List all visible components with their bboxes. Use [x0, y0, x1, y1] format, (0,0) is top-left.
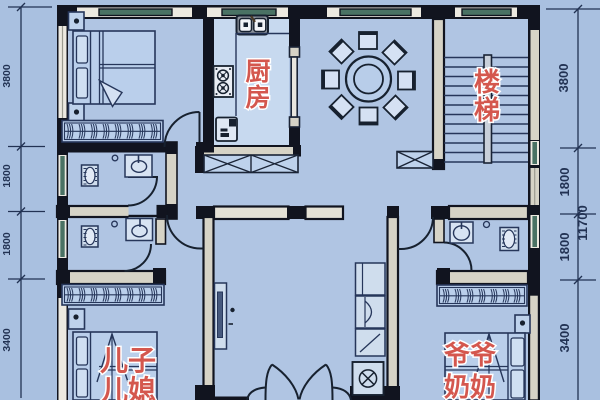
svg-text:楼: 楼 — [474, 67, 500, 97]
svg-text:爷爷: 爷爷 — [444, 340, 497, 370]
svg-text:儿媳: 儿媳 — [100, 374, 156, 400]
svg-text:1800: 1800 — [1, 164, 13, 188]
svg-text:3400: 3400 — [1, 328, 13, 352]
svg-text:3800: 3800 — [1, 64, 13, 88]
svg-text:奶奶: 奶奶 — [444, 372, 496, 400]
svg-text:房: 房 — [245, 83, 270, 112]
svg-text:1800: 1800 — [1, 232, 13, 256]
svg-text:11700: 11700 — [575, 205, 590, 240]
svg-text:3800: 3800 — [556, 64, 571, 93]
svg-text:1800: 1800 — [557, 168, 572, 197]
svg-text:儿子: 儿子 — [100, 345, 156, 376]
svg-text:1800: 1800 — [557, 233, 572, 262]
svg-text:厨: 厨 — [245, 58, 270, 86]
svg-text:梯: 梯 — [474, 95, 500, 125]
svg-text:3400: 3400 — [557, 324, 572, 353]
